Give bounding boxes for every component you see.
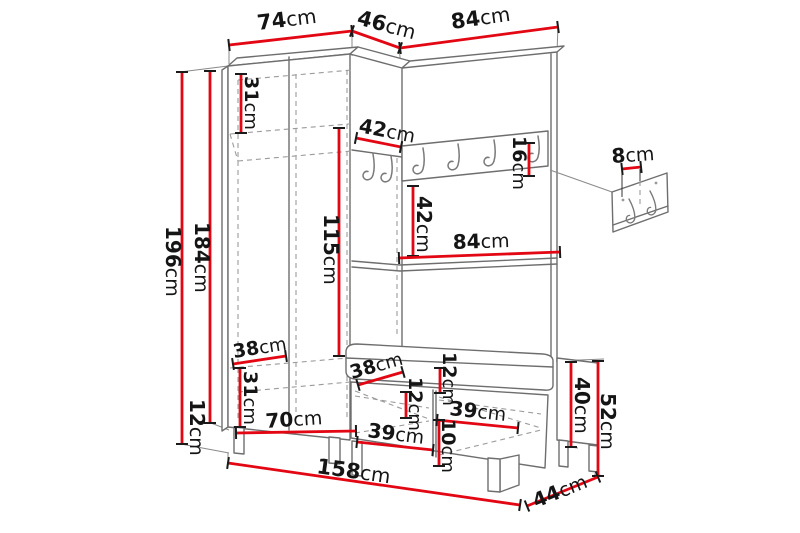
dimension-end-tick [517,422,518,434]
dimension-label: 70cm [265,405,323,433]
leg [488,458,500,492]
dimension-label: 31cm [239,371,261,425]
dimension-line [229,31,352,45]
diagram-canvas: 74cm46cm84cm196cm184cm12cm31cm115cm38cm3… [0,0,800,533]
coat-hook-icon [363,154,374,180]
leg [559,440,568,467]
screw-dot [655,182,658,185]
shelf-front-edge [352,258,557,265]
screw-dot [622,199,625,202]
dimension-label: 12cm [404,377,426,431]
dimension-label: 84cm [449,2,511,34]
dimension-label: 31cm [240,76,262,130]
dimension-label: 44cm [529,469,591,513]
dimension-84cm: 84cm [399,2,559,54]
dimension-196cm: 196cm [161,72,188,444]
wardrobe-left-side [222,66,228,431]
leg [500,455,519,492]
dimension-label: 115cm [319,214,343,285]
dimension-end-tick [228,39,229,51]
dimension-label: 52cm [596,393,620,450]
corner-hook-rail [352,150,402,157]
dimension-end-tick [519,499,521,511]
dimension-label: 158cm [315,454,392,488]
dimension-label: 12cm [185,399,209,456]
shelf-bottom-edge [352,264,557,271]
right-panel [352,46,564,360]
dimension-label: 196cm [161,226,185,297]
dimension-end-tick [227,457,229,469]
dimension-label: 42cm [412,196,436,253]
dimension-184cm: 184cm [190,71,216,423]
coat-hook-icon [381,156,392,182]
furniture-dimension-diagram: 74cm46cm84cm196cm184cm12cm31cm115cm38cm3… [0,0,800,533]
dimension-label: 40cm [570,377,594,434]
dimension-42cm: 42cm [407,186,436,256]
dimension-label: 42cm [357,113,417,147]
dimension-line [622,167,641,169]
panel-connector-line [550,170,612,192]
dimension-label: 8cm [611,141,655,168]
dimension-44cm: 44cm [525,469,601,513]
dimension-label: 16cm [508,136,530,190]
dimension-label: 184cm [190,222,214,293]
dimension-end-tick [356,436,357,448]
dimension-74cm: 74cm [228,4,352,51]
corner-unit [350,47,410,352]
wall-hook-panel [550,169,668,232]
dimension-label: 74cm [256,4,318,35]
dimension-158cm: 158cm [227,454,521,511]
dimension-line [236,431,356,433]
dimension-label: 10cm [437,419,459,473]
dimension-label: 46cm [355,6,419,45]
dimension-8cm: 8cm [611,141,655,175]
dimension-end-tick [432,444,433,456]
dimension-label: 84cm [452,228,510,254]
right-panel-top-face [402,46,564,68]
dimension-12cm: 12cm [185,399,209,456]
